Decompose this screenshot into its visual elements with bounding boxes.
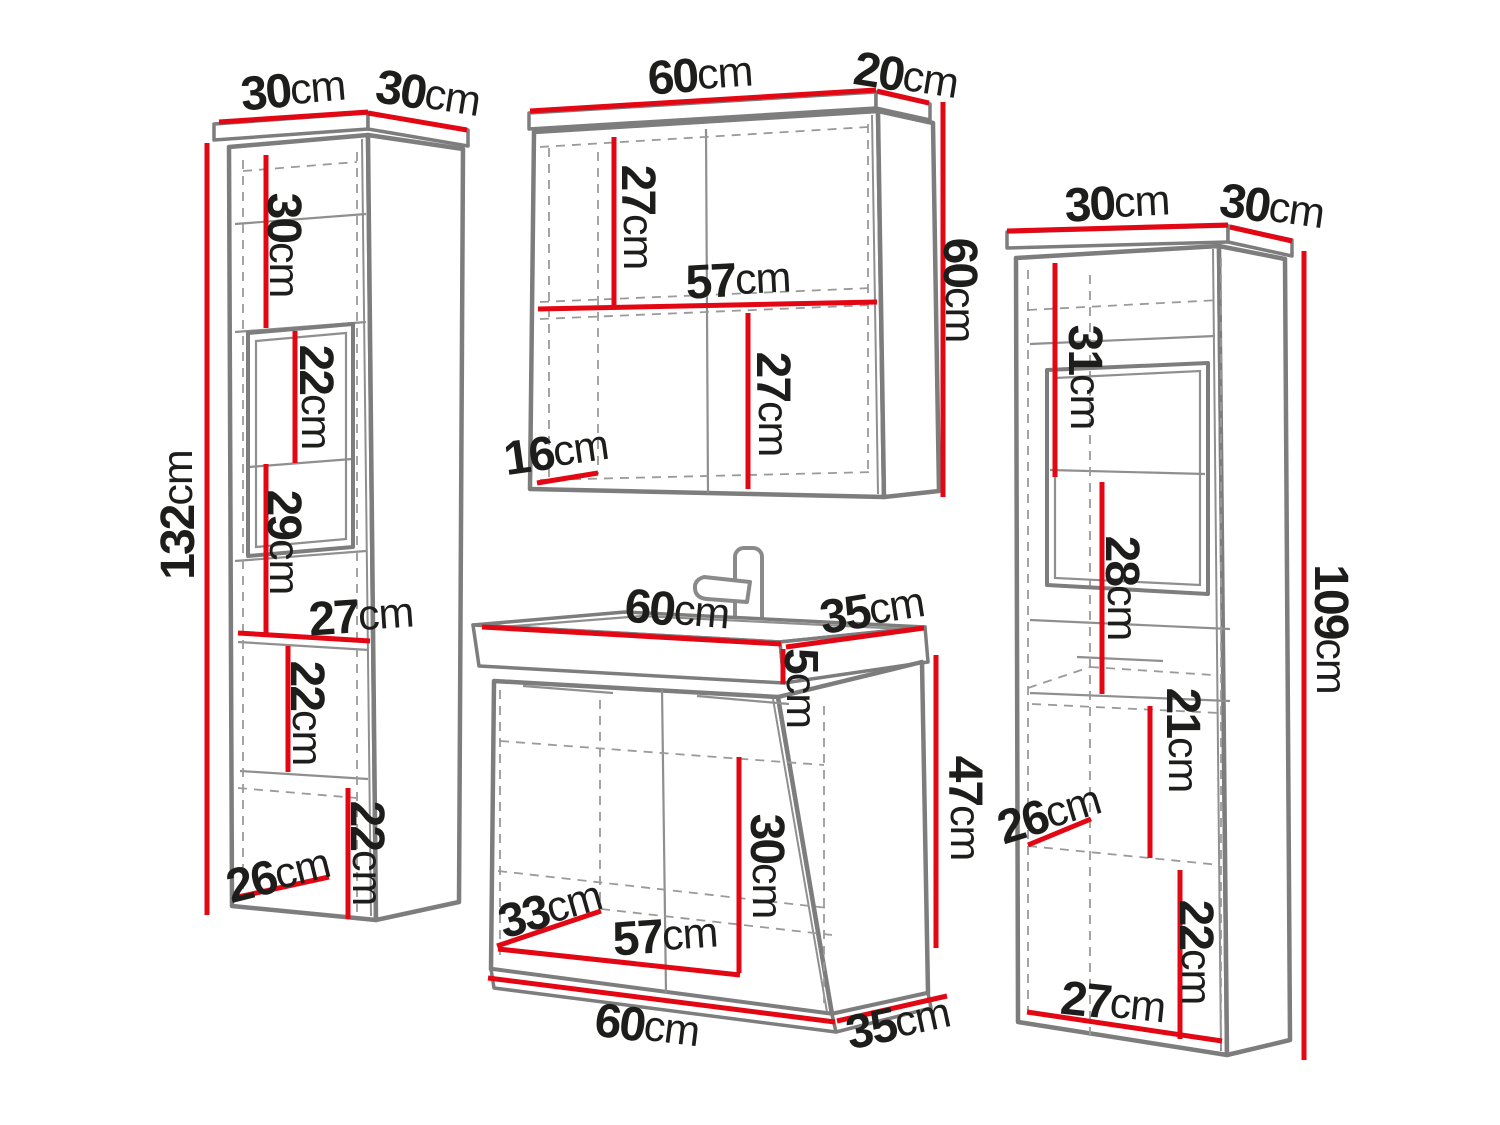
dimension-label-tall-cabinet-right: 21cm xyxy=(1157,688,1210,793)
tall-cabinet-right-drawing xyxy=(1007,225,1304,1060)
dimension-label-sink-vanity: 60cm xyxy=(623,579,732,641)
dimension-label-mirror-cabinet: 27cm xyxy=(747,352,800,457)
dimension-label-sink-vanity: 5cm xyxy=(775,648,828,728)
dimension-label-tall-cabinet-left: 27cm xyxy=(307,586,415,646)
dimension-label-tall-cabinet-right: 31cm xyxy=(1059,325,1112,430)
cabinet-side-face xyxy=(878,111,939,497)
dimension-label-mirror-cabinet: 27cm xyxy=(612,165,665,270)
dimension-label-tall-cabinet-right: 28cm xyxy=(1096,536,1149,641)
dimension-label-tall-cabinet-right: 30cm xyxy=(1063,174,1170,232)
cabinet-side-face xyxy=(1219,246,1290,1055)
dimension-label-tall-cabinet-left: 29cm xyxy=(258,490,311,595)
dimension-label-tall-cabinet-right: 109cm xyxy=(1305,564,1358,693)
dimension-label-tall-cabinet-right: 22cm xyxy=(1170,900,1223,1005)
dimension-label-tall-cabinet-left: 22cm xyxy=(341,801,394,906)
dimension-label-mirror-cabinet: 57cm xyxy=(684,251,791,309)
dimension-label-mirror-cabinet: 60cm xyxy=(646,45,754,105)
dimension-label-sink-vanity: 57cm xyxy=(611,906,719,966)
dimension-label-sink-vanity: 30cm xyxy=(741,814,794,919)
dimension-label-tall-cabinet-left: 30cm xyxy=(258,193,311,298)
furniture-diagram-canvas: 30cm30cm30cm22cm29cm27cm22cm22cm26cm132c… xyxy=(0,0,1500,1125)
dimension-label-mirror-cabinet: 60cm xyxy=(934,238,987,343)
dimension-label-tall-cabinet-left: 22cm xyxy=(281,661,334,766)
dimension-label-tall-cabinet-left: 30cm xyxy=(239,59,348,121)
dimension-label-tall-cabinet-left: 132cm xyxy=(152,450,205,579)
dimension-label-tall-cabinet-left: 22cm xyxy=(290,345,343,450)
dimension-label-sink-vanity: 47cm xyxy=(939,756,992,861)
tall-cabinet-left-drawing xyxy=(207,112,468,920)
dimension-diagram: 30cm30cm30cm22cm29cm27cm22cm22cm26cm132c… xyxy=(0,0,1500,1125)
